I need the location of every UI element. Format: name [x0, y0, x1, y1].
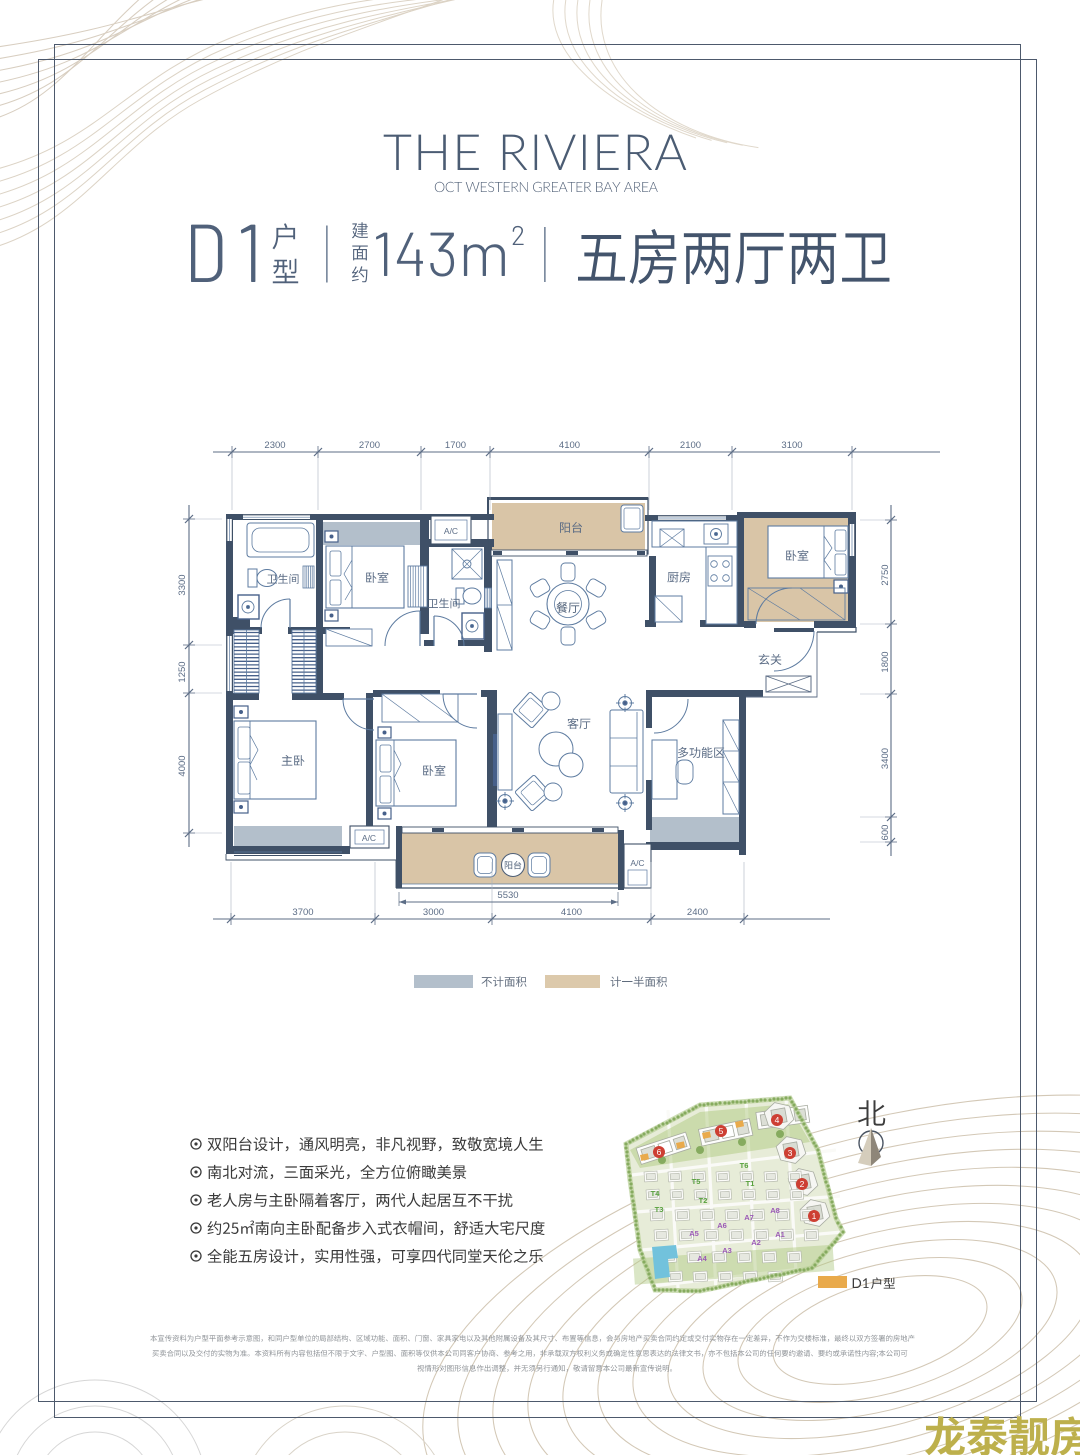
- svg-text:2300: 2300: [264, 440, 285, 451]
- svg-text:2100: 2100: [680, 440, 701, 451]
- svg-text:2750: 2750: [880, 564, 891, 585]
- svg-text:T3: T3: [655, 1205, 664, 1214]
- svg-text:3300: 3300: [177, 574, 188, 595]
- svg-text:2: 2: [800, 1179, 805, 1189]
- svg-text:2400: 2400: [687, 907, 708, 918]
- svg-text:A5: A5: [689, 1229, 699, 1238]
- svg-text:4100: 4100: [559, 440, 580, 451]
- svg-text:2700: 2700: [359, 440, 380, 451]
- svg-text:600: 600: [880, 825, 891, 841]
- svg-text:6: 6: [657, 1147, 662, 1157]
- svg-text:3700: 3700: [292, 907, 313, 918]
- svg-text:T4: T4: [651, 1189, 661, 1198]
- svg-text:A/C: A/C: [362, 833, 376, 843]
- svg-text:T2: T2: [699, 1196, 708, 1205]
- svg-text:1800: 1800: [880, 651, 891, 672]
- svg-text:A6: A6: [717, 1221, 727, 1230]
- svg-text:4000: 4000: [177, 755, 188, 776]
- svg-text:1250: 1250: [177, 661, 188, 682]
- svg-text:3100: 3100: [781, 440, 802, 451]
- svg-text:A8: A8: [770, 1206, 780, 1215]
- svg-text:3: 3: [788, 1148, 793, 1158]
- svg-text:5: 5: [719, 1126, 724, 1136]
- svg-text:A/C: A/C: [444, 526, 458, 536]
- svg-text:5530: 5530: [497, 890, 518, 901]
- svg-text:1: 1: [812, 1211, 817, 1221]
- svg-text:T6: T6: [740, 1161, 749, 1170]
- svg-text:3400: 3400: [880, 748, 891, 769]
- svg-text:A2: A2: [751, 1238, 761, 1247]
- svg-text:A1: A1: [775, 1230, 785, 1239]
- svg-text:T5: T5: [692, 1177, 701, 1186]
- svg-text:A7: A7: [744, 1213, 754, 1222]
- svg-text:T1: T1: [746, 1179, 755, 1188]
- svg-text:1700: 1700: [445, 440, 466, 451]
- svg-text:A3: A3: [722, 1246, 732, 1255]
- svg-text:4: 4: [775, 1115, 780, 1125]
- svg-text:A/C: A/C: [630, 858, 644, 868]
- svg-text:4100: 4100: [561, 907, 582, 918]
- svg-text:A4: A4: [697, 1254, 707, 1263]
- svg-text:3000: 3000: [423, 907, 444, 918]
